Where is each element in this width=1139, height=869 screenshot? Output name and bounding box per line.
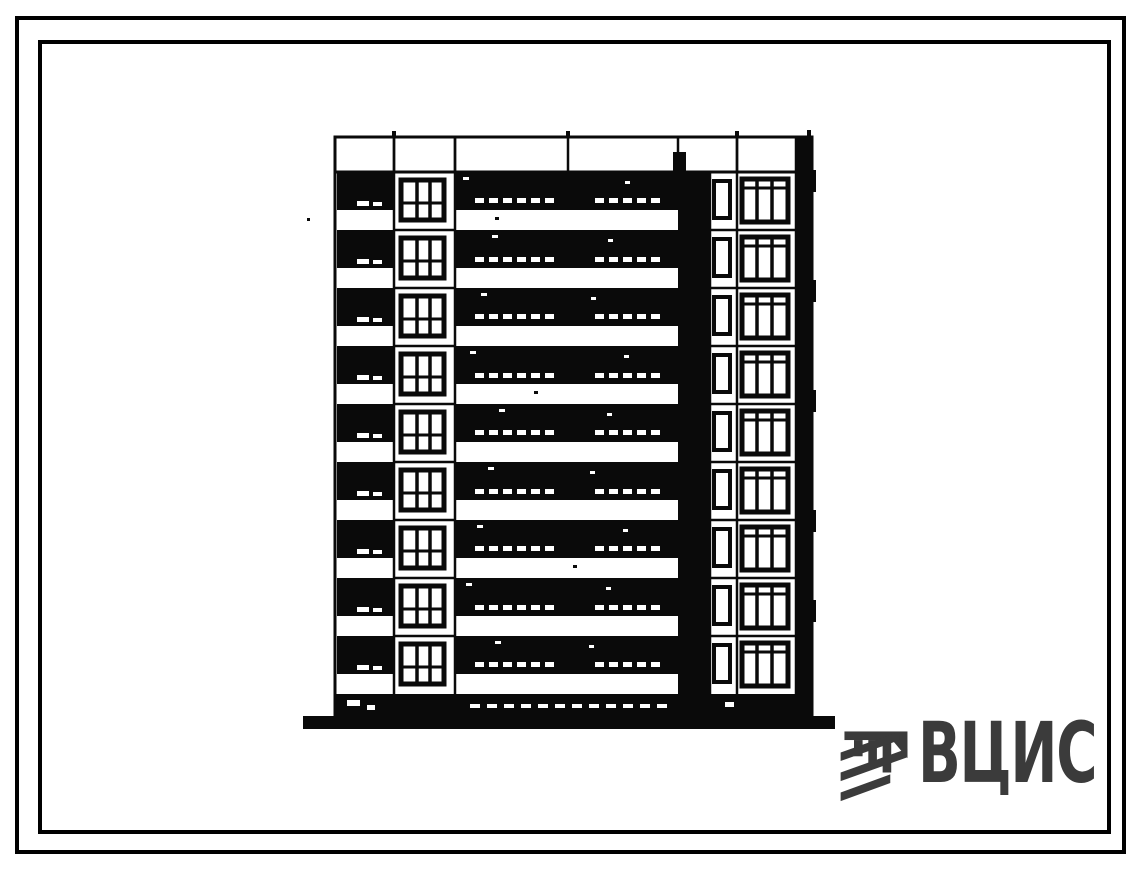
rail-dash [623, 257, 632, 262]
rail-dash [475, 489, 484, 494]
rail-dash [595, 314, 604, 319]
window-frame [714, 181, 730, 218]
window-frame [742, 237, 788, 280]
window-frame [742, 295, 788, 338]
rail-dash [531, 314, 540, 319]
rail-dash [623, 546, 632, 551]
loggia-band [455, 172, 678, 210]
rail-dash [475, 546, 484, 551]
scan-speck [623, 529, 628, 532]
rail-dash [531, 257, 540, 262]
scan-speck [591, 297, 596, 300]
rail-dash [503, 257, 512, 262]
rail-dash [489, 198, 498, 203]
window-frame [742, 643, 788, 686]
rail-dash [521, 704, 531, 708]
rail-dash [503, 605, 512, 610]
elevation-root [303, 130, 835, 729]
rail-dash [489, 489, 498, 494]
rail-dash [517, 546, 526, 551]
scan-speck [725, 702, 734, 707]
balcony-rail-mark [357, 375, 369, 380]
floor-row [337, 404, 796, 454]
rail-dash [489, 430, 498, 435]
rail-dash [531, 546, 540, 551]
window-frame [742, 353, 788, 396]
rail-dash [651, 373, 660, 378]
rail-dash [637, 605, 646, 610]
floor-row [337, 462, 796, 512]
rail-dash [475, 373, 484, 378]
rail-dash [651, 198, 660, 203]
rail-dash [623, 198, 632, 203]
scan-speck [589, 645, 594, 648]
rail-dash [609, 373, 618, 378]
loggia-band [455, 520, 678, 558]
floor-row [337, 636, 796, 686]
rail-dash [640, 704, 650, 708]
rail-dash [504, 704, 514, 708]
rail-dash [637, 430, 646, 435]
window-frame [714, 239, 730, 276]
rail-dash [545, 257, 554, 262]
window [714, 355, 730, 392]
balcony-rail-mark [357, 201, 369, 206]
window-frame [401, 412, 444, 452]
window [742, 179, 788, 222]
balcony-rail-mark [373, 318, 382, 322]
rail-dash [609, 662, 618, 667]
scan-speck [499, 409, 505, 412]
rail-dash [503, 198, 512, 203]
rail-dash [489, 662, 498, 667]
floor-row [337, 172, 796, 222]
rail-dash [475, 257, 484, 262]
balcony-rail-mark [357, 491, 369, 496]
rail-dash [489, 546, 498, 551]
rail-dash [503, 546, 512, 551]
rail-dash [470, 704, 480, 708]
rail-dash [517, 605, 526, 610]
rail-dash [517, 373, 526, 378]
window-frame [401, 354, 444, 394]
rail-dash [595, 662, 604, 667]
window-frame [401, 238, 444, 278]
balcony-rail-mark [373, 376, 382, 380]
rail-dash [637, 489, 646, 494]
rail-dash [595, 489, 604, 494]
scan-speck [607, 413, 612, 416]
rail-dash [545, 662, 554, 667]
scan-speck [492, 235, 498, 238]
window-frame [714, 413, 730, 450]
rail-dash [609, 198, 618, 203]
window [714, 471, 730, 508]
window [401, 586, 444, 626]
scan-speck [488, 467, 494, 470]
window [401, 238, 444, 278]
rail-dash [623, 373, 632, 378]
scan-speck [606, 587, 611, 590]
balcony-rail-mark [373, 434, 382, 438]
window [401, 412, 444, 452]
rail-dash [555, 704, 565, 708]
floor-row [337, 230, 796, 280]
rail-dash [545, 605, 554, 610]
rail-dash [503, 314, 512, 319]
window [401, 470, 444, 510]
rail-dash [545, 198, 554, 203]
window-frame [742, 469, 788, 512]
rail-dash [595, 257, 604, 262]
balcony-rail-mark [373, 260, 382, 264]
window-frame [401, 180, 444, 220]
loggia-band [455, 578, 678, 616]
rail-dash [609, 430, 618, 435]
scan-speck [477, 525, 483, 528]
scan-speck [624, 355, 629, 358]
scan-speck [307, 218, 310, 221]
vcis-logo: ВЦИС [836, 720, 1139, 804]
balcony-rail-mark [357, 549, 369, 554]
window-frame [401, 296, 444, 336]
rail-dash [595, 605, 604, 610]
rail-dash [517, 430, 526, 435]
loggia-band [455, 636, 678, 674]
window-frame [401, 644, 444, 684]
scan-speck [470, 351, 476, 354]
window-frame [742, 411, 788, 454]
window [742, 585, 788, 628]
window-frame [714, 297, 730, 334]
scan-speck [347, 700, 360, 706]
rail-dash [487, 704, 497, 708]
window [742, 469, 788, 512]
rail-dash [489, 314, 498, 319]
scan-speck [625, 181, 630, 184]
rail-dash [503, 489, 512, 494]
rail-dash [651, 430, 660, 435]
rail-dash [606, 704, 616, 708]
rail-dash [545, 430, 554, 435]
balcony-rail-mark [373, 492, 382, 496]
rail-dash [531, 373, 540, 378]
rail-dash [531, 605, 540, 610]
rail-dash [595, 373, 604, 378]
window [742, 643, 788, 686]
vcis-emblem-icon [836, 720, 914, 804]
balcony-rail-mark [373, 608, 382, 612]
rail-dash [623, 430, 632, 435]
window [742, 411, 788, 454]
scan-speck [481, 293, 487, 296]
rail-dash [545, 373, 554, 378]
rail-dash [489, 605, 498, 610]
scan-speck [466, 583, 472, 586]
rail-dash [517, 314, 526, 319]
vcis-emblem-shapes [841, 731, 908, 801]
rail-dash [609, 489, 618, 494]
balcony-rail-mark [357, 317, 369, 322]
scan-speck [495, 641, 501, 644]
floor-row [337, 346, 796, 396]
window [401, 644, 444, 684]
rail-dash [595, 198, 604, 203]
window [714, 181, 730, 218]
rail-dash [475, 662, 484, 667]
window-frame [742, 585, 788, 628]
window [714, 239, 730, 276]
window-frame [714, 529, 730, 566]
rail-dash [595, 430, 604, 435]
rail-dash [637, 257, 646, 262]
rail-dash [651, 662, 660, 667]
rail-dash [657, 704, 667, 708]
parapet-band [335, 137, 812, 172]
scan-speck [495, 217, 499, 220]
window-frame [714, 355, 730, 392]
balcony-rail-mark [357, 259, 369, 264]
rail-dash [609, 257, 618, 262]
scan-speck [573, 565, 577, 568]
window-frame [401, 528, 444, 568]
balcony-rail-mark [357, 665, 369, 670]
window [714, 645, 730, 682]
window-frame [742, 179, 788, 222]
scan-speck [534, 391, 538, 394]
rail-dash [545, 314, 554, 319]
window [714, 587, 730, 624]
floor-row [337, 288, 796, 338]
rail-dash [531, 198, 540, 203]
rail-dash [545, 489, 554, 494]
rail-dash [517, 489, 526, 494]
window [401, 180, 444, 220]
rail-dash [637, 198, 646, 203]
rail-dash [517, 662, 526, 667]
rail-dash [609, 314, 618, 319]
vcis-logo-text: ВЦИС [918, 711, 1096, 795]
floor-row [337, 520, 796, 570]
window [401, 528, 444, 568]
window-frame [714, 645, 730, 682]
rail-dash [503, 373, 512, 378]
rail-dash [572, 704, 582, 708]
rail-dash [531, 489, 540, 494]
rail-dash [651, 489, 660, 494]
rail-dash [623, 662, 632, 667]
rail-dash [623, 605, 632, 610]
window-frame [742, 527, 788, 570]
rail-dash [623, 314, 632, 319]
loggia-band [455, 230, 678, 268]
rail-dash [475, 314, 484, 319]
window [401, 296, 444, 336]
floor-row [337, 578, 796, 628]
rail-dash [623, 704, 633, 708]
rail-dash [517, 198, 526, 203]
rail-dash [489, 257, 498, 262]
window [742, 353, 788, 396]
rail-dash [589, 704, 599, 708]
balcony-rail-mark [373, 666, 382, 670]
window-frame [401, 470, 444, 510]
stair-shaft [678, 172, 710, 716]
rail-dash [531, 430, 540, 435]
rail-dash [623, 489, 632, 494]
window [714, 529, 730, 566]
scan-speck [608, 239, 613, 242]
loggia-band [455, 288, 678, 326]
rail-dash [545, 546, 554, 551]
window-frame [714, 587, 730, 624]
balcony-rail-mark [373, 202, 382, 206]
window [742, 237, 788, 280]
ground-line [303, 716, 835, 729]
rail-dash [475, 198, 484, 203]
balcony-rail-mark [357, 607, 369, 612]
parapet-mark [673, 152, 686, 172]
window [401, 354, 444, 394]
dark-edge-right [796, 137, 812, 716]
building-elevation-drawing [295, 130, 855, 745]
rail-dash [503, 662, 512, 667]
balcony-rail-mark [357, 433, 369, 438]
rail-dash [609, 605, 618, 610]
scan-speck [590, 471, 595, 474]
scan-speck [367, 705, 375, 710]
rail-dash [595, 546, 604, 551]
window-frame [401, 586, 444, 626]
rail-dash [531, 662, 540, 667]
window [742, 295, 788, 338]
scan-speck [463, 177, 469, 180]
rail-dash [475, 605, 484, 610]
rail-dash [609, 546, 618, 551]
window [742, 527, 788, 570]
rail-dash [651, 546, 660, 551]
loggia-band [455, 404, 678, 442]
window-frame [714, 471, 730, 508]
loggia-band [455, 346, 678, 384]
rail-dash [651, 605, 660, 610]
rail-dash [637, 546, 646, 551]
rail-dash [475, 430, 484, 435]
balcony-rail-mark [373, 550, 382, 554]
rail-dash [489, 373, 498, 378]
window [714, 413, 730, 450]
rail-dash [538, 704, 548, 708]
rail-dash [651, 314, 660, 319]
rail-dash [637, 662, 646, 667]
rail-dash [637, 373, 646, 378]
rail-dash [503, 430, 512, 435]
rail-dash [517, 257, 526, 262]
window [714, 297, 730, 334]
rail-dash [637, 314, 646, 319]
rail-dash [651, 257, 660, 262]
